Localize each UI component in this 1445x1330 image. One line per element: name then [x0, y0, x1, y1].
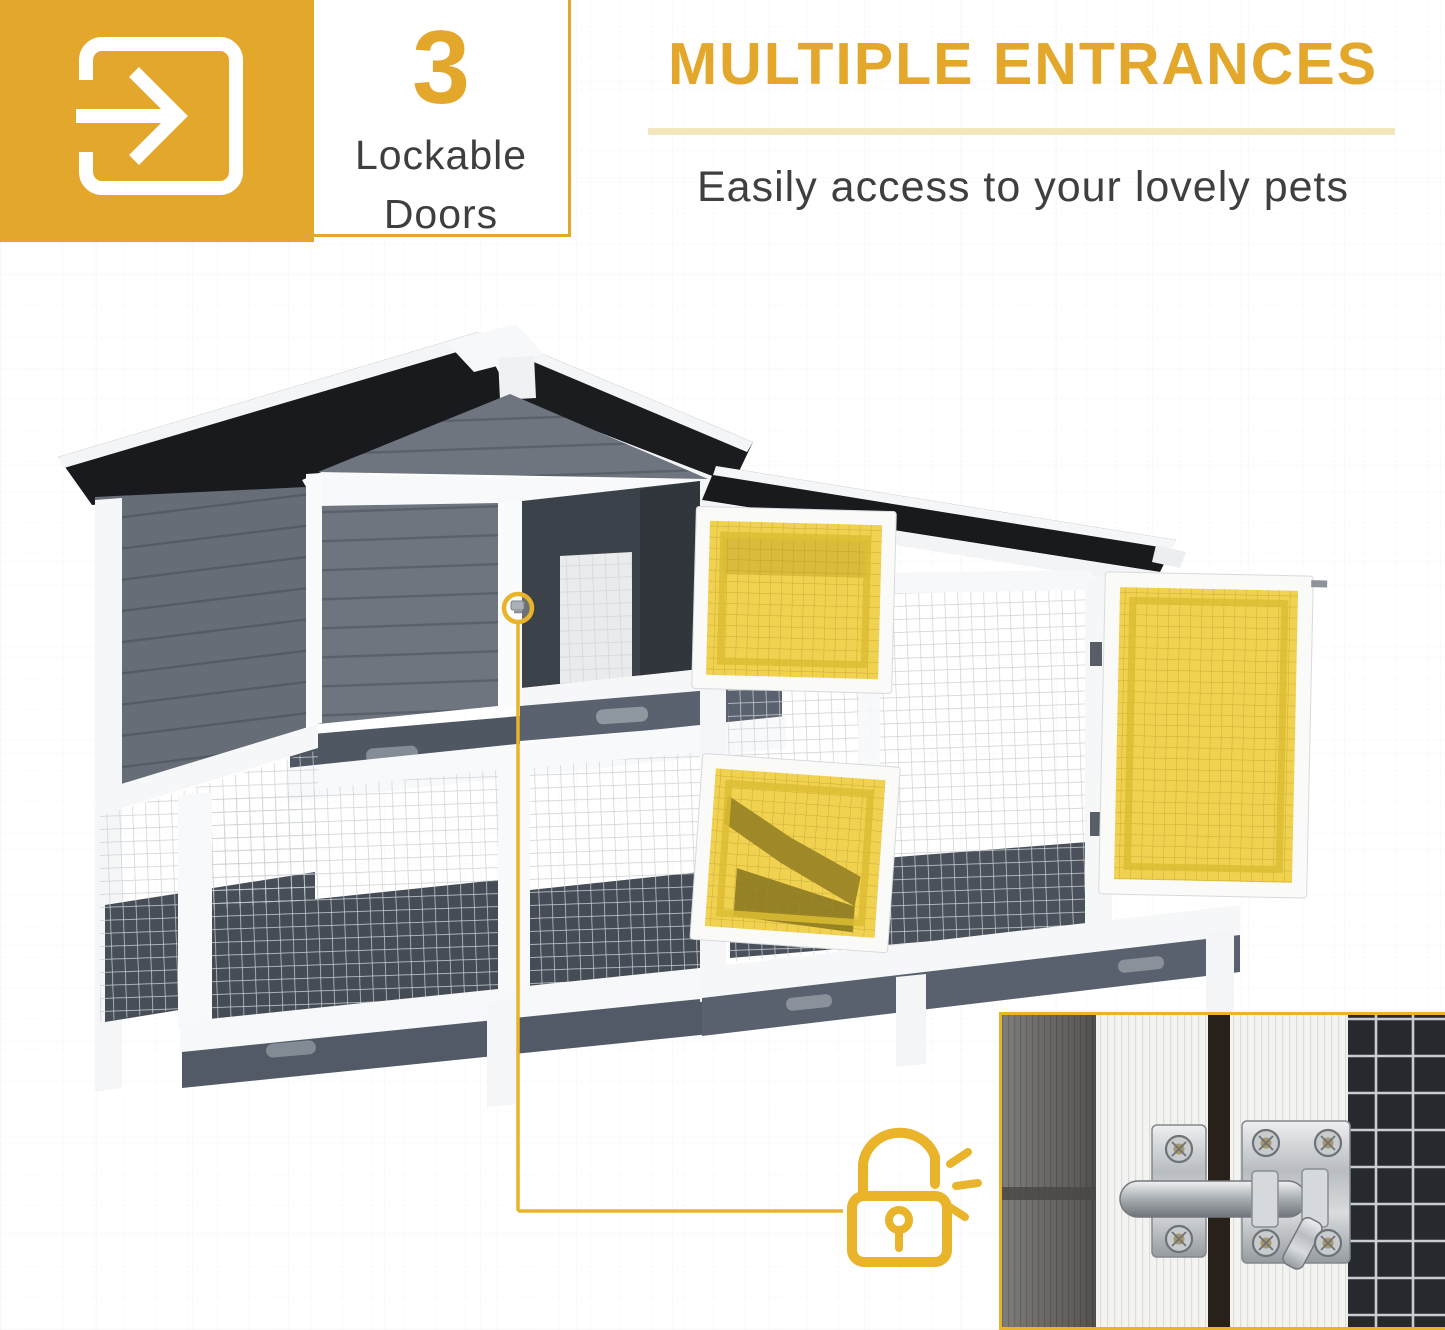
latch-marker-icon [504, 594, 532, 622]
lower-run-level [100, 750, 710, 1107]
highlighted-door-upper [692, 506, 897, 693]
lock-icon [852, 1133, 978, 1262]
highlighted-door-large [1099, 572, 1328, 899]
latch-closeup-photo-inset [999, 1012, 1445, 1330]
latch-photo [1002, 1015, 1445, 1327]
promo-image: { "badge": { "value": "3", "label_line1"… [0, 0, 1445, 1330]
highlighted-door-lower [690, 753, 900, 952]
